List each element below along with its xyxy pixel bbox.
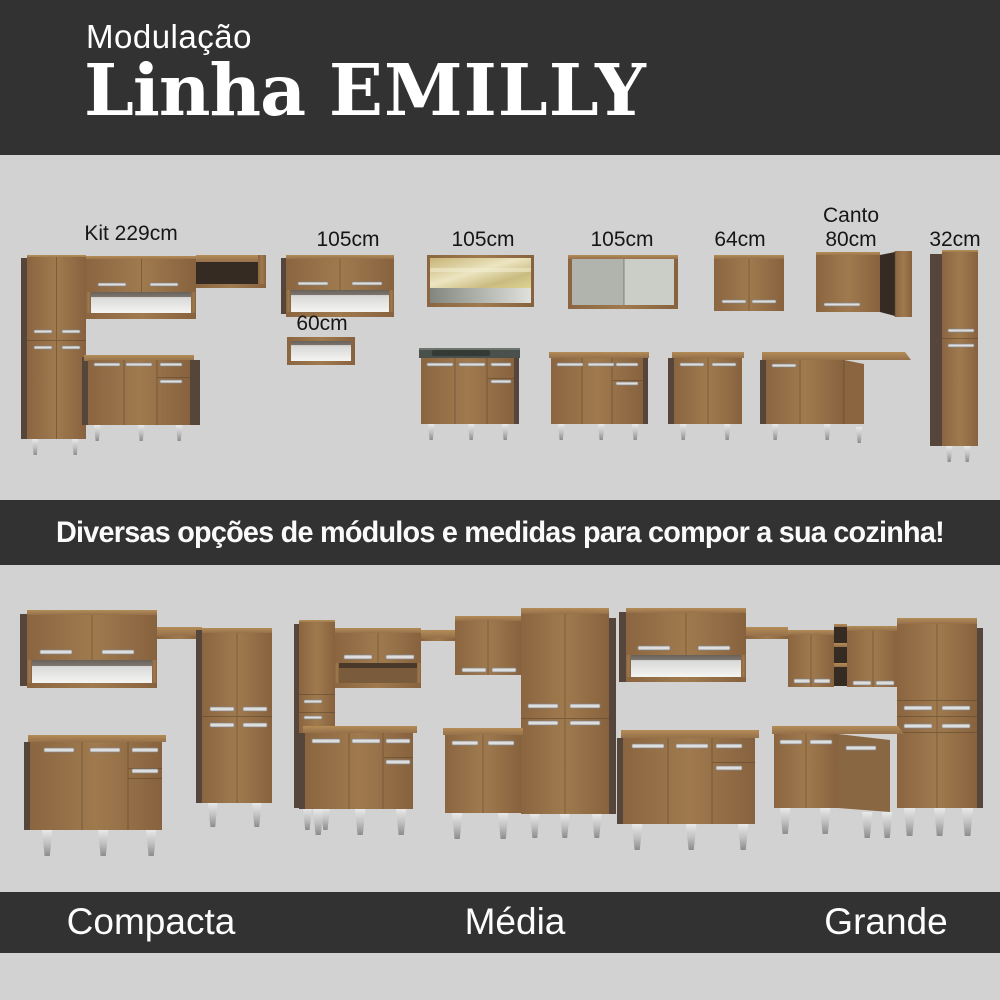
kitchen-media [294,608,616,839]
label-upper-105cm: 105cm [316,228,379,252]
module-sink-base-105cm [419,348,520,440]
module-upper-64cm [714,255,784,311]
promo-page: Modulação Linha EMILLY [0,0,1000,1000]
label-canto-line1: Canto [823,204,879,228]
label-sliding-105cm: 105cm [590,228,653,252]
module-canto-upper-80cm [816,251,912,317]
module-shelf-60cm [287,337,355,365]
label-upper-64cm: 64cm [714,228,765,252]
label-kitchen-media: Média [465,901,566,943]
label-tall-32cm: 32cm [929,228,980,252]
kitchen-grande [617,608,983,850]
title-prefix: Linha [84,48,305,132]
module-kit-229cm [21,255,266,455]
module-base-105cm [549,352,649,440]
module-upper-105cm [281,255,394,317]
label-canto-line2: 80cm [823,228,879,252]
page-title: Linha EMILLY [84,48,647,132]
label-kitchen-grande: Grande [824,901,947,943]
label-shelf-60cm: 60cm [296,312,347,336]
title-emphasis: EMILLY [329,48,647,132]
module-tall-32cm [930,250,978,462]
label-kitchen-compacta: Compacta [67,901,236,943]
module-canto-base-80cm [760,352,911,443]
kitchen-compacta [20,610,272,856]
banner-text: Diversas opções de módulos e medidas par… [20,500,980,565]
label-glass-105cm: 105cm [451,228,514,252]
label-kit-229cm: Kit 229cm [84,222,177,246]
module-base-64cm [668,352,744,440]
label-canto-80cm: Canto 80cm [823,204,879,252]
module-sliding-105cm [568,255,678,309]
module-glass-105cm [427,255,534,307]
